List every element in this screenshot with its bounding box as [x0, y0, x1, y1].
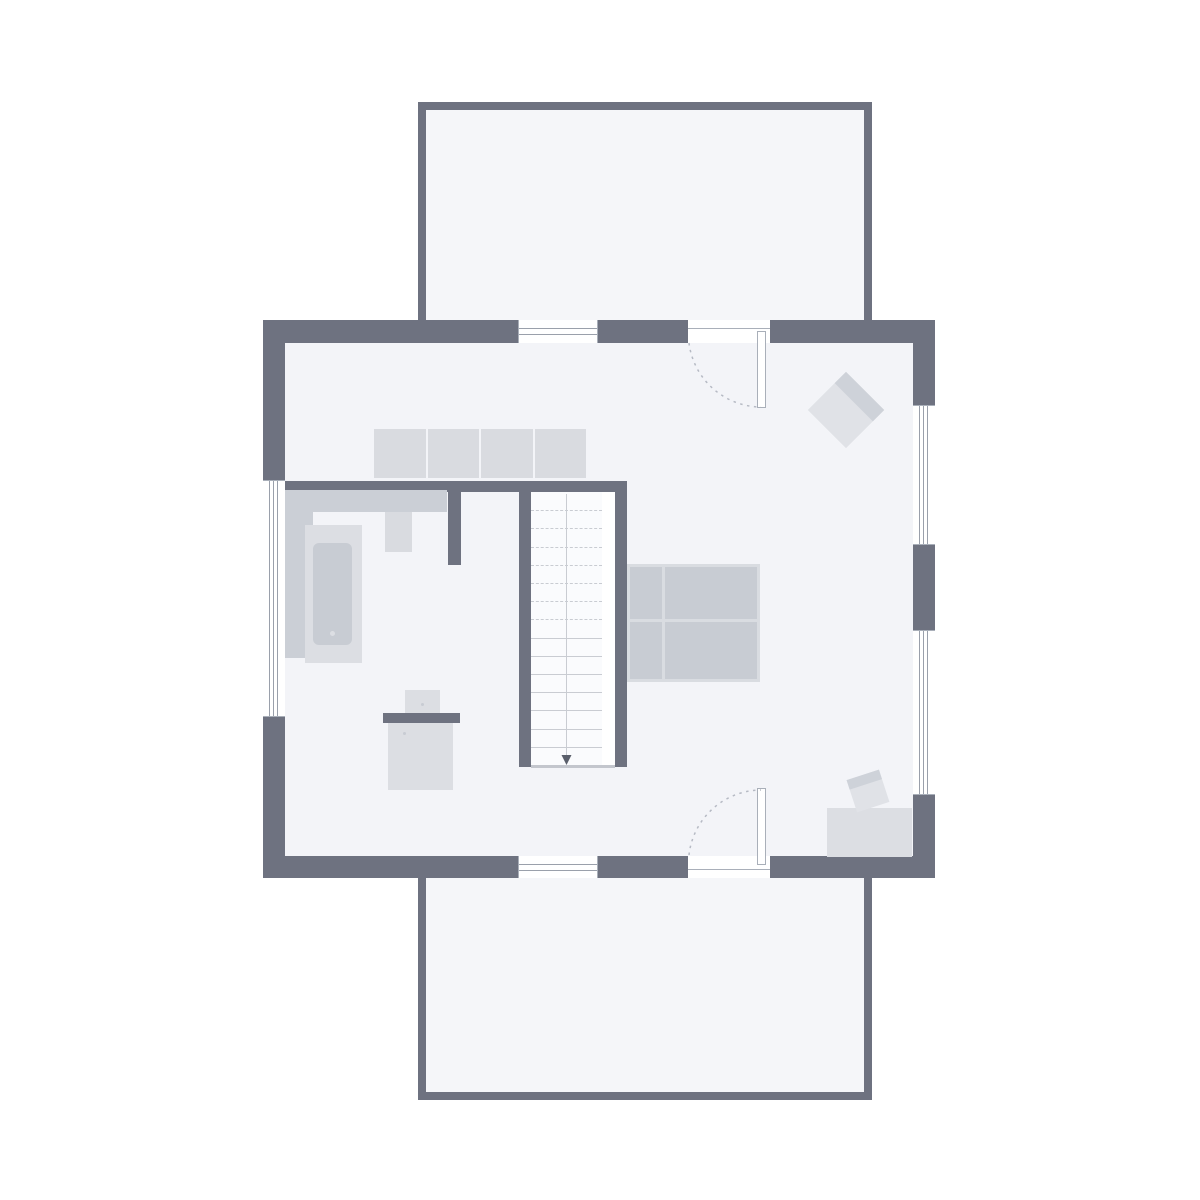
bed-panel	[665, 622, 757, 679]
wardrobe-segment	[481, 429, 533, 478]
bed-panel	[665, 567, 757, 619]
window-right-upper	[913, 405, 935, 545]
partition-wall-bathroom-stub	[448, 492, 461, 565]
window-pane-line	[273, 481, 274, 716]
window-bottom	[518, 856, 598, 878]
washbasin	[385, 512, 412, 552]
stairwell-wall-right	[615, 492, 627, 767]
window-top	[518, 320, 598, 343]
wardrobe-segment	[374, 429, 426, 478]
terrace	[418, 878, 872, 1100]
window-pane-line	[919, 631, 920, 794]
bed-panel	[630, 567, 662, 619]
stairwell-bottom-edge	[531, 765, 615, 768]
window-pane-line	[519, 328, 597, 329]
window-pane-line	[519, 870, 597, 871]
balcony	[418, 102, 872, 320]
wardrobe	[374, 429, 586, 478]
faucet-dot	[421, 703, 424, 706]
window-pane-line	[923, 631, 924, 794]
stairwell-wall-left	[519, 492, 531, 767]
window-left	[263, 480, 285, 717]
window-pane-line	[923, 406, 924, 544]
wardrobe-segment	[428, 429, 480, 478]
window-pane-line	[919, 406, 920, 544]
stair-center-line	[566, 494, 567, 756]
desk	[827, 808, 912, 857]
door-threshold-line	[688, 328, 770, 329]
exterior-wall-top	[263, 320, 935, 343]
bathtub-drain	[330, 631, 335, 636]
window-pane-line	[927, 406, 928, 544]
window-pane-line	[269, 481, 270, 716]
stair-landing-strip	[602, 492, 615, 765]
washstand-wall-stub	[383, 713, 460, 723]
floor-plan-canvas	[0, 0, 1200, 1200]
door-threshold-line	[688, 869, 770, 870]
window-pane-line	[519, 864, 597, 865]
faucet-dot	[403, 732, 406, 735]
washstand-upper-cabinet	[405, 690, 440, 713]
window-right-lower	[913, 630, 935, 795]
bathtub-basin	[313, 543, 352, 645]
window-pane-line	[519, 334, 597, 335]
double-bed	[627, 564, 760, 682]
bed-panel	[630, 622, 662, 679]
door-leaf-top	[757, 331, 766, 408]
door-leaf-bottom	[757, 788, 766, 865]
exterior-wall-bottom	[263, 856, 935, 878]
window-pane-line	[277, 481, 278, 716]
window-pane-line	[927, 631, 928, 794]
bathtub	[305, 525, 362, 663]
wardrobe-segment	[535, 429, 587, 478]
washstand-lower-cabinet	[388, 723, 453, 790]
